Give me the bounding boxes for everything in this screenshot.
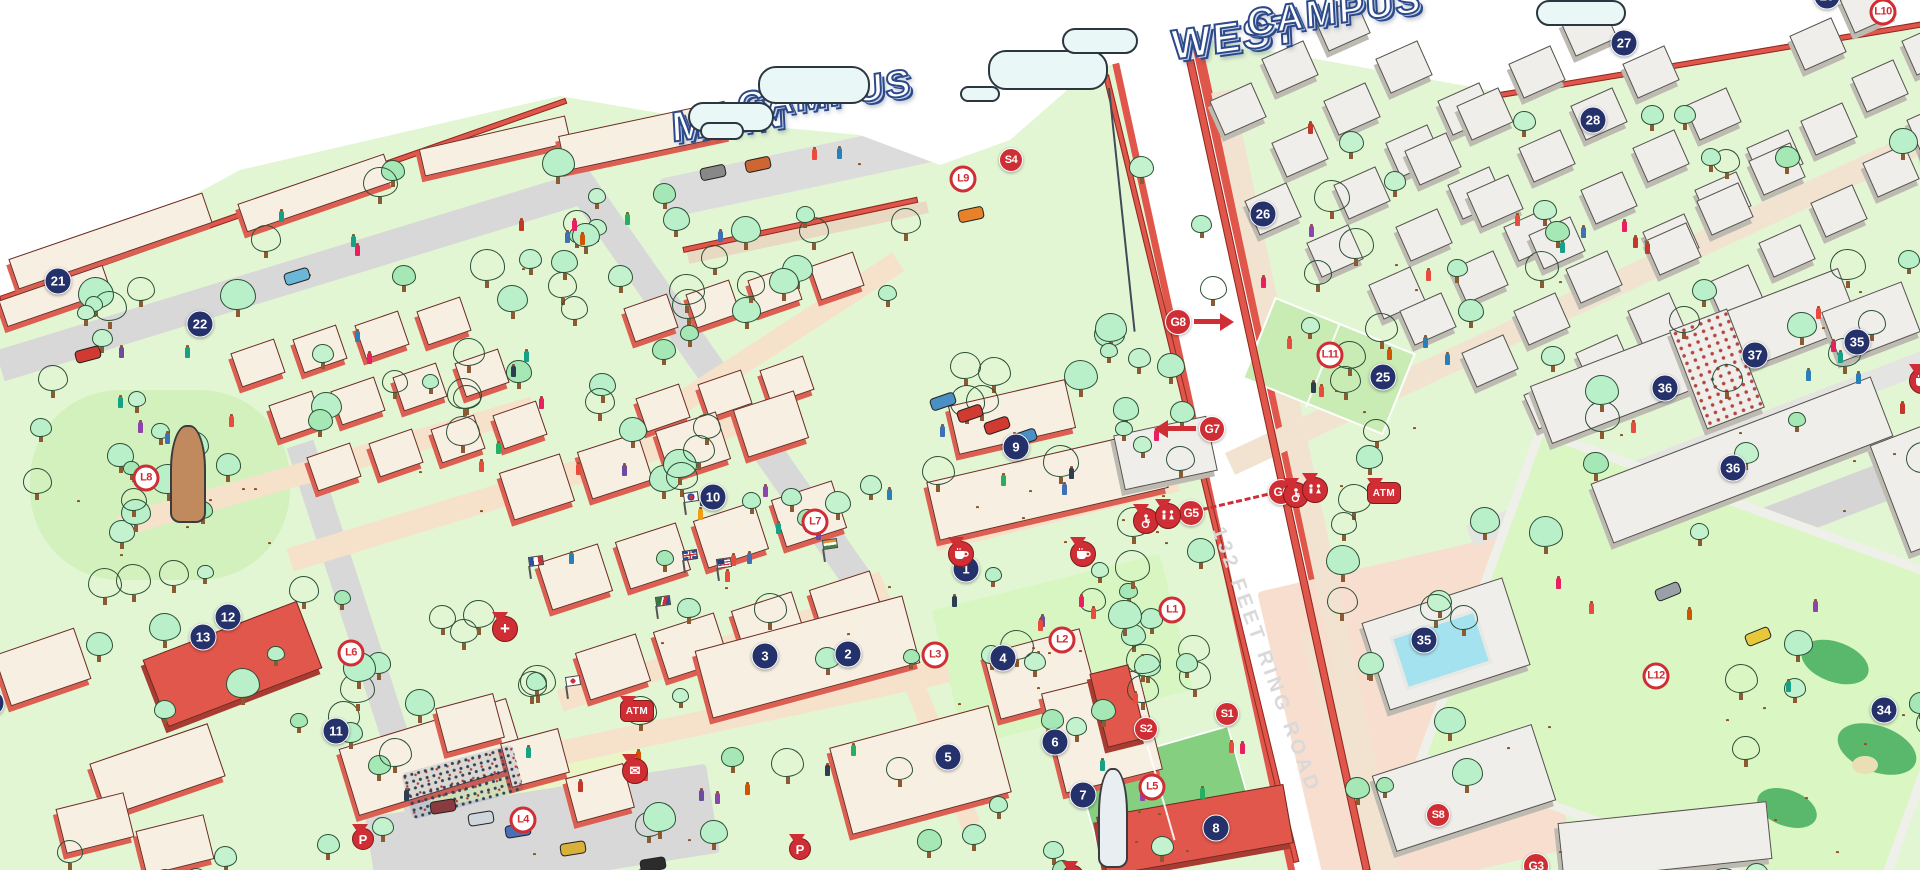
building-marker-7[interactable]: 7	[1070, 782, 1097, 809]
campus-building	[1323, 82, 1380, 135]
tree	[1095, 313, 1127, 342]
tree-trunk	[1340, 614, 1344, 621]
tree	[1108, 600, 1142, 630]
tree	[497, 285, 528, 312]
person-figure	[825, 765, 830, 776]
person-figure	[1031, 649, 1036, 660]
person-figure	[572, 220, 577, 231]
location-marker-L11[interactable]: L11	[1317, 342, 1344, 369]
mail-pin-tip	[622, 754, 638, 774]
tree-trunk	[563, 273, 567, 280]
tree	[1091, 562, 1109, 578]
person-figure	[1762, 709, 1767, 720]
person-figure	[622, 465, 627, 476]
person-figure	[1062, 484, 1067, 495]
person-figure	[1631, 422, 1636, 433]
gate-marker-G5[interactable]: G5	[1178, 500, 1204, 526]
tree	[1541, 346, 1565, 367]
person-figure	[699, 790, 704, 801]
campus-building	[1851, 59, 1908, 112]
tree-trunk	[1059, 477, 1063, 484]
tree	[1327, 587, 1358, 615]
building-marker-36[interactable]: 36	[1720, 455, 1747, 482]
gate-marker-G3[interactable]: G3	[1523, 853, 1549, 870]
tree	[363, 167, 398, 198]
tree	[23, 468, 52, 494]
tree-trunk	[1551, 365, 1555, 372]
location-marker-L3[interactable]: L3	[922, 642, 949, 669]
tree	[1889, 128, 1918, 153]
tree-trunk	[511, 312, 515, 319]
tree	[731, 216, 762, 243]
building-marker-26[interactable]: 26	[1250, 201, 1277, 228]
building-marker-3[interactable]: 3	[752, 643, 779, 670]
tree-trunk	[1354, 259, 1358, 266]
building-marker-11[interactable]: 11	[323, 718, 350, 745]
building-marker-5[interactable]: 5	[935, 744, 962, 771]
tree	[214, 846, 238, 867]
person-figure	[1856, 373, 1861, 384]
tree	[903, 649, 920, 664]
cloud	[960, 86, 1000, 102]
person-figure	[745, 784, 750, 795]
building-marker-34[interactable]: 34	[1871, 697, 1898, 724]
building-marker-14[interactable]: 14	[0, 690, 5, 717]
tree	[30, 418, 52, 437]
tree	[1376, 777, 1394, 793]
tree	[1091, 699, 1116, 721]
person-figure	[1858, 293, 1863, 304]
flag-south-africa-icon	[655, 595, 671, 607]
person-figure	[1121, 521, 1126, 532]
atm-pin-tip	[620, 696, 636, 716]
parking-pin-tip	[1062, 861, 1078, 870]
person-figure	[208, 501, 213, 512]
person-figure	[1589, 603, 1594, 614]
tree-trunk	[662, 492, 666, 499]
tree-trunk	[1744, 760, 1748, 767]
location-marker-L12[interactable]: L12	[1643, 663, 1670, 690]
building-marker-9[interactable]: 9	[1003, 434, 1030, 461]
tree	[1732, 736, 1760, 761]
person-figure	[837, 148, 842, 159]
tree	[1788, 412, 1805, 427]
tree	[1447, 259, 1468, 278]
tree	[1100, 343, 1117, 358]
tree	[680, 325, 699, 342]
tree	[220, 279, 255, 310]
building-marker-4[interactable]: 4	[990, 645, 1017, 672]
person-figure	[1863, 745, 1868, 756]
location-marker-L5[interactable]: L5	[1139, 774, 1166, 801]
person-figure	[975, 508, 980, 519]
person-figure	[1558, 853, 1563, 864]
campus-building	[0, 628, 91, 707]
tree	[672, 688, 689, 703]
tree	[1157, 353, 1185, 378]
tree	[159, 560, 189, 586]
location-marker-L8[interactable]: L8	[133, 465, 160, 492]
building-marker-8[interactable]: 8	[1203, 815, 1230, 842]
tree-trunk	[1796, 655, 1800, 662]
tree-trunk	[812, 243, 816, 250]
building-marker-6[interactable]: 6	[1042, 729, 1069, 756]
flag-japan-icon	[565, 675, 581, 687]
person-figure	[725, 571, 730, 582]
tree	[92, 329, 113, 347]
tree	[518, 671, 547, 697]
tree-trunk	[302, 602, 306, 609]
tree	[1725, 664, 1758, 693]
tree-trunk	[1600, 405, 1604, 412]
tree	[796, 206, 815, 223]
atm-pin-tip	[1367, 478, 1383, 498]
tree-trunk	[1702, 300, 1706, 307]
person-figure	[511, 366, 516, 377]
tree	[1356, 445, 1383, 468]
tree-trunk	[377, 774, 381, 781]
tree-trunk	[836, 513, 840, 520]
tree-trunk	[418, 716, 422, 723]
person-figure	[576, 464, 581, 475]
person-figure	[1515, 215, 1520, 226]
person-figure	[660, 644, 665, 655]
person-figure	[1806, 370, 1811, 381]
tree-trunk	[1540, 281, 1544, 288]
person-figure	[1506, 749, 1511, 760]
person-figure	[1619, 436, 1624, 447]
person-figure	[404, 790, 409, 801]
tree-trunk	[172, 586, 176, 593]
tree-trunk	[631, 441, 635, 448]
tree-trunk	[744, 243, 748, 250]
person-figure	[1200, 788, 1205, 799]
person-figure	[1240, 743, 1245, 754]
person-figure	[267, 544, 272, 555]
accessibility-pin-tip	[1133, 504, 1149, 524]
person-figure	[1155, 533, 1160, 544]
person-figure	[1339, 487, 1344, 498]
tree	[1365, 313, 1398, 342]
building-marker-12[interactable]: 12	[215, 604, 242, 631]
tree-trunk	[378, 197, 382, 204]
gate-marker-G8[interactable]: G8	[1165, 309, 1191, 335]
tree-trunk	[1123, 629, 1127, 636]
tree	[1314, 180, 1350, 212]
tree-trunk	[1079, 390, 1083, 397]
tree-trunk	[517, 382, 521, 389]
tree	[677, 598, 700, 618]
tree-trunk	[1901, 153, 1905, 160]
tree	[652, 339, 676, 360]
person-figure	[1001, 475, 1006, 486]
tree-trunk	[556, 177, 560, 184]
person-figure	[718, 231, 723, 242]
campus-building	[615, 522, 691, 589]
tree	[149, 613, 181, 641]
flag-united-kingdom-icon	[682, 549, 698, 561]
building-marker-2[interactable]: 2	[835, 641, 862, 668]
location-marker-L7[interactable]: L7	[802, 509, 829, 536]
tree-trunk	[639, 724, 643, 731]
tree-trunk	[697, 463, 701, 470]
flag-france-icon	[528, 555, 544, 567]
campus-building	[1271, 124, 1328, 177]
person-figure	[1560, 242, 1565, 253]
tree-trunk	[536, 696, 540, 703]
tree-trunk	[1349, 152, 1353, 159]
tree-trunk	[318, 430, 322, 437]
tree-trunk	[1141, 703, 1145, 710]
building-marker-10[interactable]: 10	[700, 484, 727, 511]
tree	[38, 365, 68, 391]
tree-trunk	[134, 525, 138, 532]
tree	[267, 646, 284, 661]
person-figure	[1387, 349, 1392, 360]
person-figure	[418, 473, 423, 484]
person-figure	[698, 509, 703, 520]
flag-india-icon	[822, 538, 838, 550]
tree	[1339, 228, 1373, 258]
person-figure	[1821, 329, 1826, 340]
tree	[57, 840, 83, 863]
person-figure	[1394, 266, 1399, 277]
service-marker-S1[interactable]: S1	[1215, 702, 1239, 726]
person-figure	[138, 422, 143, 433]
tree	[470, 249, 506, 281]
tree-trunk	[598, 414, 602, 421]
person-figure	[1852, 462, 1857, 473]
location-marker-L9[interactable]: L9	[950, 166, 977, 193]
location-marker-L2[interactable]: L2	[1049, 627, 1076, 654]
tree-trunk	[1199, 562, 1203, 569]
tree	[669, 274, 704, 305]
tree	[978, 357, 1011, 386]
tree-trunk	[226, 475, 230, 482]
tree	[653, 183, 676, 203]
location-marker-L1[interactable]: L1	[1159, 597, 1186, 624]
tree-trunk	[462, 643, 466, 650]
location-marker-L6[interactable]: L6	[338, 640, 365, 667]
tree	[1330, 366, 1361, 393]
coffee-pin-tip	[948, 537, 964, 557]
gate-arrow-right-icon	[1194, 313, 1236, 331]
building-marker-37[interactable]: 37	[1742, 342, 1769, 369]
tree	[1583, 452, 1609, 475]
person-figure	[1645, 243, 1650, 254]
tree-trunk	[749, 296, 753, 303]
tree	[1304, 260, 1332, 285]
tree	[1513, 111, 1535, 131]
person-figure	[367, 353, 372, 364]
person-figure	[887, 489, 892, 500]
tree	[1545, 221, 1569, 243]
campus-map: 132 FEET RING ROAD MAIN CAMPUS WEST CAMP…	[0, 0, 1920, 870]
tree	[1066, 717, 1087, 736]
tree	[1712, 364, 1744, 392]
tree-trunk	[1368, 468, 1372, 475]
person-figure	[351, 236, 356, 247]
tree	[781, 488, 802, 506]
person-figure	[687, 841, 692, 852]
tree	[1115, 421, 1133, 437]
building-marker-36[interactable]: 36	[1652, 375, 1679, 402]
service-marker-S2[interactable]: S2	[1134, 717, 1158, 741]
person-figure	[1036, 689, 1041, 700]
person-figure	[519, 220, 524, 231]
gate-marker-G7[interactable]: G7	[1199, 416, 1225, 442]
tree-trunk	[119, 466, 123, 473]
tree-trunk	[1380, 342, 1384, 349]
person-figure	[1445, 354, 1450, 365]
tree	[585, 388, 615, 414]
tree-trunk	[826, 668, 830, 675]
tree	[700, 820, 728, 844]
person-figure	[887, 588, 892, 599]
person-figure	[118, 397, 123, 408]
tree-trunk	[936, 485, 940, 492]
building-marker-21[interactable]: 21	[45, 268, 72, 295]
tree	[561, 296, 588, 320]
person-figure	[1078, 652, 1083, 663]
flag-south-korea-icon	[683, 491, 699, 503]
tree	[989, 796, 1008, 813]
person-figure	[1091, 608, 1096, 619]
service-marker-S4[interactable]: S4	[999, 148, 1023, 172]
tree-trunk	[1141, 675, 1145, 682]
tree-trunk	[1650, 124, 1654, 131]
tree-trunk	[713, 268, 717, 275]
person-figure	[253, 490, 258, 501]
person-figure	[1229, 742, 1234, 753]
building-marker-35[interactable]: 35	[1411, 627, 1438, 654]
tree	[1470, 507, 1500, 533]
tree-trunk	[465, 408, 469, 415]
tree-trunk	[1594, 474, 1598, 481]
campus-building	[1800, 102, 1857, 155]
tree-trunk	[1725, 392, 1729, 399]
tree	[1784, 630, 1813, 656]
tree-trunk	[1131, 582, 1135, 589]
person-figure	[1773, 821, 1778, 832]
tree	[1641, 105, 1664, 126]
person-figure	[526, 747, 531, 758]
person-figure	[1687, 609, 1692, 620]
person-figure	[1414, 291, 1419, 302]
tree-trunk	[1369, 674, 1373, 681]
tree-trunk	[1316, 285, 1320, 292]
tree-trunk	[619, 286, 623, 293]
tree	[1458, 299, 1484, 322]
person-figure	[1133, 693, 1138, 704]
tree-trunk	[1132, 537, 1136, 544]
person-figure	[851, 745, 856, 756]
tree-trunk	[264, 251, 268, 258]
person-figure	[1185, 852, 1190, 863]
person-figure	[1633, 237, 1638, 248]
building-marker-35[interactable]: 35	[1844, 329, 1871, 356]
person-figure	[1813, 601, 1818, 612]
tree-trunk	[1846, 281, 1850, 288]
tree	[1450, 605, 1478, 630]
tree-trunk	[647, 836, 651, 843]
tree	[251, 225, 281, 251]
person-figure	[496, 443, 501, 454]
building-marker-13[interactable]: 13	[190, 624, 217, 651]
tree-trunk	[1785, 167, 1789, 174]
tree-trunk	[241, 698, 245, 705]
campus-building	[135, 814, 214, 870]
person-figure	[763, 486, 768, 497]
person-figure	[521, 270, 526, 281]
person-figure	[1028, 492, 1033, 503]
person-figure	[1816, 308, 1821, 319]
tree	[1529, 516, 1563, 546]
tree	[1151, 836, 1174, 856]
tree	[317, 834, 340, 854]
tree	[588, 188, 606, 204]
tree-trunk	[132, 595, 136, 602]
tree-trunk	[927, 851, 931, 858]
person-figure	[940, 426, 945, 437]
tree	[922, 456, 955, 485]
person-figure	[524, 351, 529, 362]
cloud	[700, 122, 744, 140]
tree	[542, 148, 575, 177]
tree	[683, 435, 715, 463]
person-figure	[1069, 468, 1074, 479]
tree-trunk	[1342, 534, 1346, 541]
tree	[1692, 279, 1717, 301]
campus-building	[354, 310, 409, 359]
gate-arrow-left-icon	[1154, 420, 1196, 438]
tree-trunk	[139, 300, 143, 307]
tree-trunk	[687, 617, 691, 624]
building-marker-28[interactable]: 28	[1580, 107, 1607, 134]
tree	[382, 370, 408, 393]
tree	[1775, 146, 1800, 168]
tree-trunk	[356, 704, 360, 711]
person-figure	[1831, 341, 1836, 352]
tree	[1326, 545, 1360, 575]
tree	[769, 268, 799, 294]
tree-trunk	[972, 844, 976, 851]
tree	[891, 208, 921, 234]
tree-trunk	[1556, 241, 1560, 248]
campus-building	[230, 338, 285, 387]
person-figure	[1738, 434, 1743, 445]
person-figure	[715, 793, 720, 804]
person-figure	[747, 553, 752, 564]
location-marker-L4[interactable]: L4	[510, 807, 537, 834]
building-marker-27[interactable]: 27	[1611, 30, 1638, 57]
tree	[1301, 317, 1320, 334]
building-marker-22[interactable]: 22	[187, 311, 214, 338]
tree-trunk	[1455, 276, 1459, 283]
tree-trunk	[1739, 693, 1743, 700]
service-marker-S8[interactable]: S8	[1426, 803, 1450, 827]
tree-trunk	[97, 655, 101, 662]
person-figure	[185, 347, 190, 358]
tree-trunk	[1448, 734, 1452, 741]
tree-trunk	[467, 366, 471, 373]
tree-trunk	[51, 391, 55, 398]
person-figure	[479, 512, 484, 523]
tree	[878, 285, 897, 302]
tree	[77, 305, 95, 320]
building-marker-25[interactable]: 25	[1370, 364, 1397, 391]
tree-trunk	[786, 777, 790, 784]
